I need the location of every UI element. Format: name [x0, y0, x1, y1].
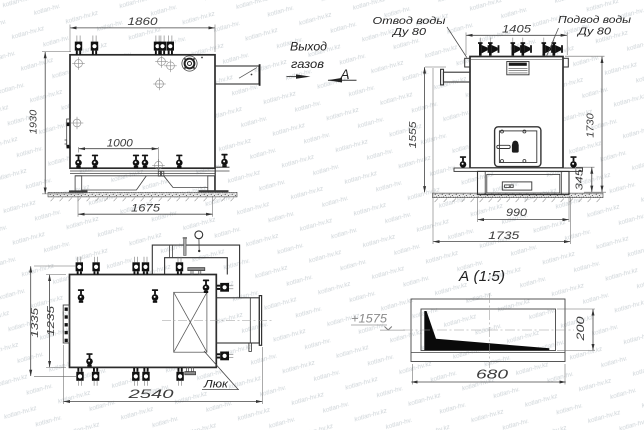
- svg-text:1930: 1930: [27, 110, 39, 135]
- svg-text:1675: 1675: [131, 203, 161, 215]
- svg-text:Подвод воды: Подвод воды: [558, 14, 631, 26]
- svg-text:1335: 1335: [29, 308, 41, 338]
- svg-text:1860: 1860: [128, 16, 159, 28]
- svg-text:1735: 1735: [488, 230, 520, 242]
- svg-text:680: 680: [476, 368, 508, 382]
- svg-text:А (1:5): А (1:5): [458, 269, 505, 285]
- svg-text:1000: 1000: [107, 137, 134, 149]
- svg-text:+1575: +1575: [351, 312, 387, 326]
- svg-text:1555: 1555: [407, 121, 419, 148]
- svg-text:Ду 80: Ду 80: [392, 26, 426, 38]
- svg-text:200: 200: [575, 315, 587, 341]
- svg-text:2540: 2540: [127, 387, 174, 401]
- svg-text:1235: 1235: [45, 306, 57, 336]
- svg-text:1405: 1405: [502, 24, 532, 36]
- svg-text:Люк: Люк: [203, 378, 229, 390]
- svg-text:990: 990: [506, 207, 528, 219]
- svg-text:А: А: [339, 67, 349, 82]
- svg-text:Ду 80: Ду 80: [577, 26, 611, 38]
- svg-text:газов: газов: [291, 59, 324, 71]
- svg-text:1730: 1730: [585, 113, 597, 138]
- svg-text:345: 345: [573, 169, 585, 190]
- svg-text:Отвод воды: Отвод воды: [373, 15, 446, 27]
- svg-text:Выход: Выход: [290, 42, 327, 54]
